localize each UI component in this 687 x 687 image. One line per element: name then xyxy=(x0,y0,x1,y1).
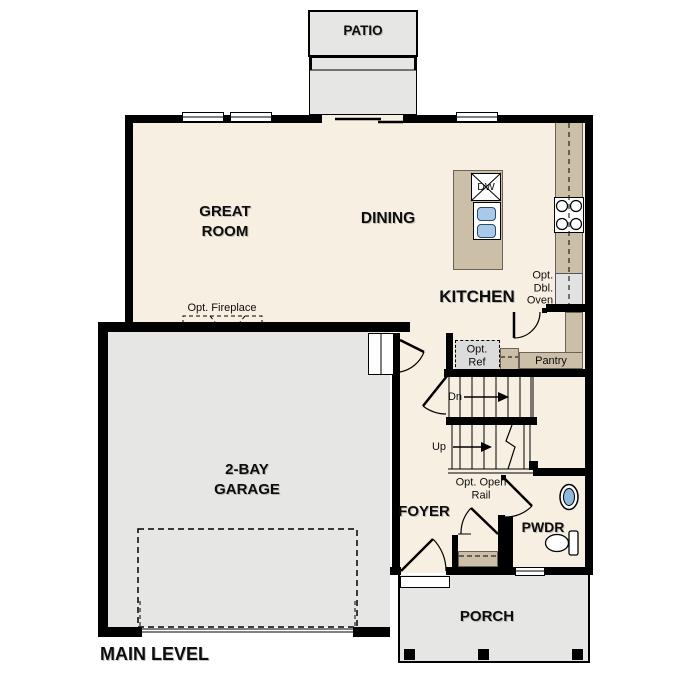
garage-door-jamb-dashes xyxy=(140,601,355,627)
opt-ref-label: Opt. Ref xyxy=(467,344,488,369)
garage-label-line2: GARAGE xyxy=(214,480,280,500)
powder-sink-basin xyxy=(564,489,575,506)
closet-door-swing xyxy=(461,508,471,534)
patio-label: PATIO xyxy=(343,21,382,41)
front-door-swing xyxy=(433,539,446,571)
garage-label-line1: 2-BAY xyxy=(214,460,280,480)
powder-door-leaf xyxy=(505,479,532,506)
pantry-door-swing xyxy=(514,312,540,338)
porch-label: PORCH xyxy=(460,607,514,627)
opt-ref-label-line2: Ref xyxy=(467,356,488,369)
fireplace-outline xyxy=(183,316,262,324)
stairs-up-label: Up xyxy=(432,441,446,454)
floorplan-linework xyxy=(0,0,687,687)
garage-door xyxy=(140,629,355,632)
pantry-label: Pantry xyxy=(535,355,567,368)
opt-dbl-oven-label: Opt. Dbl. Oven xyxy=(527,269,553,307)
great-room-label-line1: GREAT xyxy=(199,202,250,222)
stair-break-line xyxy=(506,425,515,469)
powder-door-swing xyxy=(505,506,532,517)
basement-door-leaf xyxy=(423,376,447,406)
great-room-label: GREAT ROOM xyxy=(199,202,250,242)
dining-label: DINING xyxy=(361,209,415,229)
toilet-bowl xyxy=(546,535,569,552)
dn-arrow-head xyxy=(498,392,509,402)
front-door-leaf xyxy=(401,539,433,571)
kitchen-label: KITCHEN xyxy=(439,287,515,307)
stoop-jambs xyxy=(311,58,415,70)
garage-door-travel-area xyxy=(138,529,357,627)
opt-dbl-oven-line3: Oven xyxy=(527,294,553,307)
up-arrow-head xyxy=(481,442,492,452)
garage-label: 2-BAY GARAGE xyxy=(214,460,280,500)
opt-dbl-oven-line2: Dbl. xyxy=(527,282,553,295)
opt-open-rail-line1: Opt. Open xyxy=(456,477,507,490)
garage-entry-door-swing xyxy=(400,352,424,372)
opt-open-rail-line2: Rail xyxy=(456,489,507,502)
main-level-title: MAIN LEVEL xyxy=(100,644,209,664)
stair-open-rail xyxy=(448,469,533,473)
opt-ref-label-line1: Opt. xyxy=(467,344,488,357)
stairs-dn-label: Dn xyxy=(448,391,462,404)
garage-entry-door-leaf xyxy=(400,340,424,352)
powder-label: PWDR xyxy=(522,517,565,537)
toilet-tank xyxy=(569,531,578,555)
opt-open-rail-label: Opt. Open Rail xyxy=(456,477,507,502)
closet-door-leaf xyxy=(471,508,498,534)
foyer-label: FOYER xyxy=(398,502,450,522)
dishwasher-label: DW xyxy=(477,181,495,194)
basement-door-swing xyxy=(423,406,446,414)
opt-fireplace-label: Opt. Fireplace xyxy=(187,302,256,315)
opt-dbl-oven-line1: Opt. xyxy=(527,269,553,282)
great-room-label-line2: ROOM xyxy=(199,222,250,242)
floor-plan: PATIO GREAT ROOM DINING KITCHEN 2-BAY GA… xyxy=(0,0,687,687)
